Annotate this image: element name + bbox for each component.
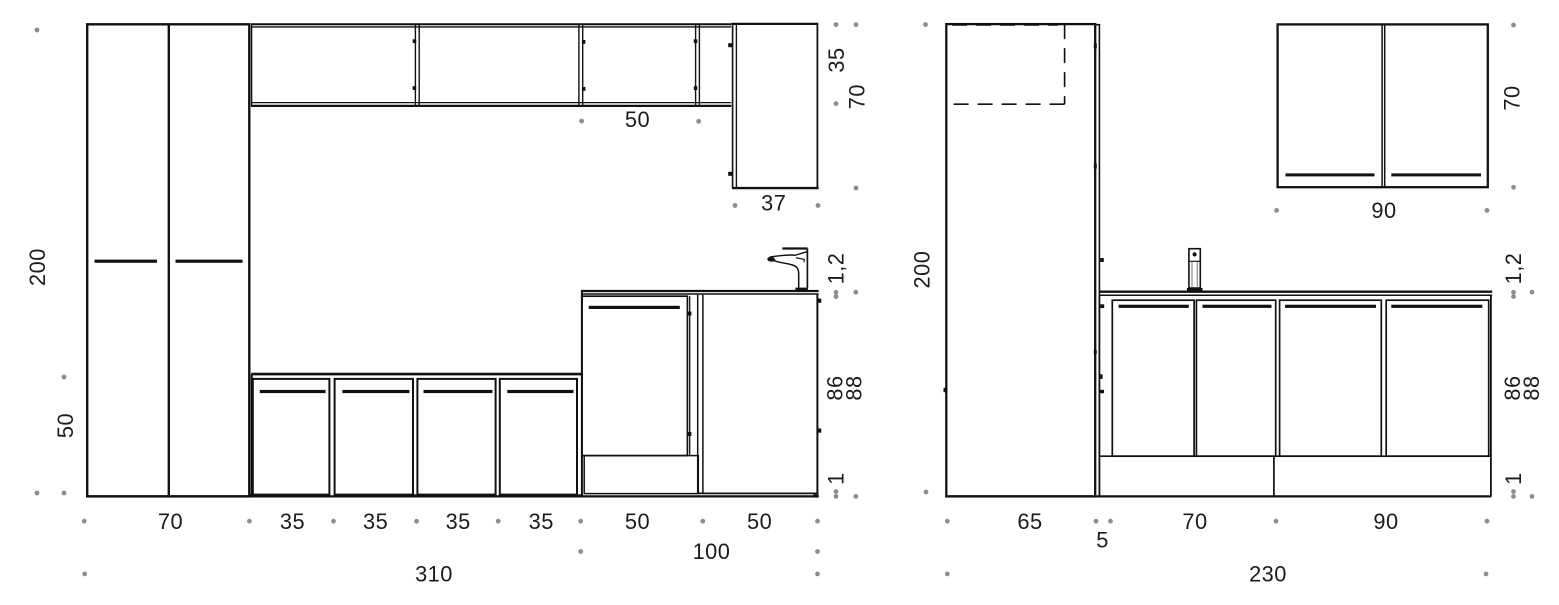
svg-text:70: 70	[1500, 85, 1525, 110]
svg-text:310: 310	[415, 561, 453, 586]
svg-text:35: 35	[824, 47, 849, 72]
svg-text:5: 5	[1096, 528, 1109, 553]
svg-text:50: 50	[625, 509, 650, 534]
svg-text:200: 200	[910, 251, 935, 289]
svg-text:37: 37	[761, 191, 786, 216]
svg-text:1,2: 1,2	[1501, 253, 1526, 285]
svg-text:88: 88	[1519, 375, 1544, 400]
svg-text:35: 35	[529, 509, 554, 534]
svg-text:230: 230	[1249, 561, 1287, 586]
svg-text:90: 90	[1373, 509, 1398, 534]
svg-text:90: 90	[1371, 198, 1396, 223]
svg-text:1,2: 1,2	[824, 253, 849, 285]
svg-text:70: 70	[1182, 509, 1207, 534]
svg-text:1: 1	[824, 472, 849, 485]
svg-text:200: 200	[25, 248, 50, 286]
svg-text:35: 35	[363, 509, 388, 534]
svg-text:70: 70	[845, 84, 870, 109]
svg-text:100: 100	[693, 539, 731, 564]
svg-text:1: 1	[1501, 472, 1526, 485]
svg-text:88: 88	[842, 375, 867, 400]
svg-text:35: 35	[280, 509, 305, 534]
svg-text:65: 65	[1017, 509, 1042, 534]
svg-text:50: 50	[625, 107, 650, 132]
svg-text:50: 50	[53, 413, 78, 438]
svg-text:50: 50	[747, 509, 772, 534]
svg-text:35: 35	[446, 509, 471, 534]
svg-text:70: 70	[158, 509, 183, 534]
